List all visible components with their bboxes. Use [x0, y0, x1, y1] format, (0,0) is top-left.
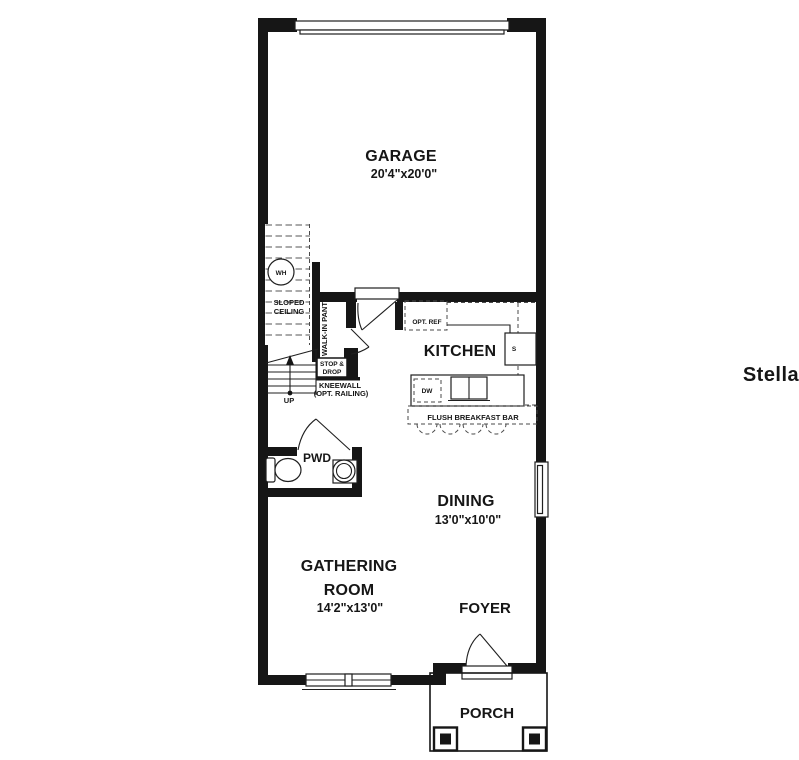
dining-label: DINING: [437, 493, 494, 510]
dining-window-symbol: [535, 462, 548, 517]
range-label: S: [512, 346, 517, 353]
garage-label: GARAGE: [365, 148, 437, 165]
kneewall-label-line2: (OPT. RAILING): [314, 389, 369, 398]
floor-plan-page: GARAGE 20'4"x20'0" KITCHEN DINING 13'0"x…: [0, 0, 799, 760]
dining-dims: 13'0"x10'0": [435, 513, 502, 527]
water-heater-label: WH: [276, 270, 287, 277]
kitchen-label: KITCHEN: [424, 343, 497, 360]
garage-dims: 20'4"x20'0": [371, 167, 438, 181]
toilet-symbol: [266, 458, 301, 482]
stop-drop-label-line1: STOP &: [320, 361, 344, 368]
gathering-window-symbol: [302, 674, 396, 690]
dishwasher-label: DW: [422, 388, 434, 395]
powder-sink-symbol: [333, 460, 357, 483]
breakfast-bar-label: FLUSH BREAKFAST BAR: [427, 413, 519, 422]
bar-stools: [417, 424, 506, 434]
foyer-label: FOYER: [459, 600, 511, 617]
garage-entry-door-symbol: [355, 288, 399, 330]
porch-label: PORCH: [460, 705, 514, 722]
walls: [258, 18, 546, 685]
floor-plan-drawing: GARAGE 20'4"x20'0" KITCHEN DINING 13'0"x…: [0, 0, 799, 760]
porch-column-right: [523, 728, 546, 751]
sloped-ceiling-label-line1: SLOPED: [274, 298, 305, 307]
porch-column-left: [434, 728, 457, 751]
garage-door-symbol: [295, 21, 509, 34]
up-label: UP: [284, 396, 294, 405]
gathering-room-label-line2: ROOM: [324, 582, 375, 599]
powder-room-door-symbol: [298, 419, 350, 450]
gathering-room-label-line1: GATHERING: [301, 558, 398, 575]
powder-room-label: PWD: [303, 451, 331, 465]
stairs: [266, 349, 318, 395]
watermark: StellarMLS: [743, 364, 799, 386]
sloped-ceiling-area: [265, 224, 310, 345]
gathering-room-dims: 14'2"x13'0": [317, 601, 384, 615]
sloped-ceiling-label-line2: CEILING: [274, 307, 305, 316]
stop-drop-label-line2: DROP: [323, 369, 342, 376]
opt-ref-label: OPT. REF: [412, 319, 441, 326]
walk-in-pantry-label: WALK-IN PANTRY: [320, 292, 329, 356]
